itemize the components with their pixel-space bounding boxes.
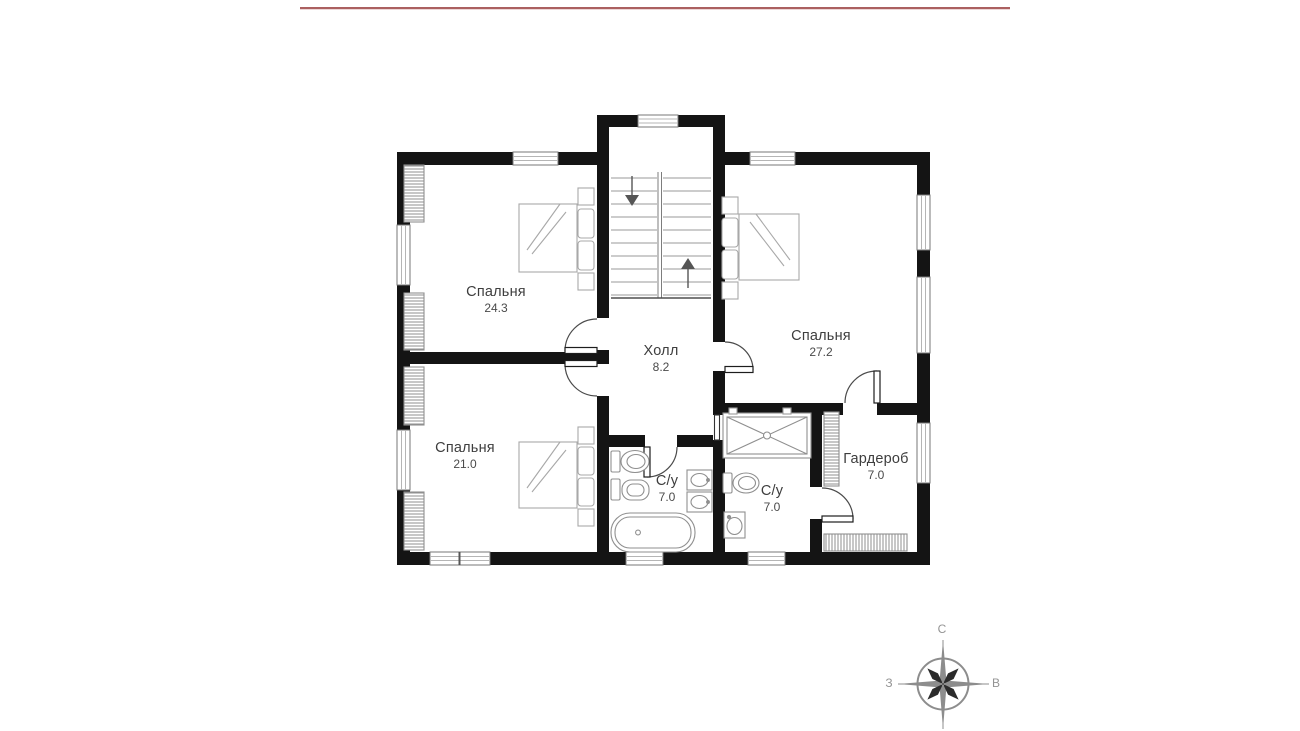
room-label-hall: Холл 8.2	[644, 343, 679, 374]
compass-west-label: З	[885, 676, 892, 690]
window-bottom-left-icon	[430, 552, 490, 565]
window-top-left-icon	[513, 152, 558, 165]
window-left-upper-icon	[397, 225, 410, 285]
bidet-icon	[611, 479, 649, 500]
door-bedroom-right	[725, 342, 753, 373]
door-bedroom-right-to-wardrobe	[845, 371, 880, 403]
compass-north-label: С	[938, 622, 947, 636]
window-bottom-bath2-icon	[748, 552, 785, 565]
room-label-bedroom-bottom-left: Спальня 21.0	[435, 440, 495, 471]
bed-bedroom-top-left-icon	[519, 188, 594, 290]
window-right-middle-icon	[917, 277, 930, 353]
room-label-bedroom-right: Спальня 27.2	[791, 328, 851, 359]
room-label-bedroom-top-left: Спальня 24.3	[466, 284, 526, 315]
sink-right-icon	[724, 512, 745, 538]
room-label-bathroom-right: С/у 7.0	[761, 483, 783, 514]
compass-east-label: В	[992, 676, 1000, 690]
shower-icon	[723, 408, 811, 458]
toilet-left-icon	[611, 451, 649, 473]
staircase	[611, 172, 711, 298]
door-wardrobe	[822, 488, 853, 522]
room-label-wardrobe: Гардероб 7.0	[843, 451, 908, 482]
window-right-wardrobe-icon	[917, 423, 930, 483]
double-sink-icon	[687, 470, 712, 512]
door-bathroom-right	[715, 415, 720, 440]
window-right-upper-icon	[917, 195, 930, 250]
door-bedroom-top-left	[565, 319, 597, 354]
bathtub-icon	[611, 513, 695, 552]
window-top-right-icon	[750, 152, 795, 165]
window-bottom-bath1-icon	[626, 552, 663, 565]
room-label-bathroom-left: С/у 7.0	[656, 473, 678, 504]
fixtures	[611, 408, 811, 552]
compass-rose-icon	[898, 640, 989, 729]
bed-bedroom-bottom-left-icon	[519, 427, 594, 526]
stair-arrow-up-icon	[681, 258, 695, 288]
toilet-right-icon	[723, 473, 759, 493]
window-left-lower-icon	[397, 430, 410, 490]
floor-plan-page: Спальня 24.3 Спальня 27.2 Спальня 21.0 Х…	[0, 0, 1300, 731]
window-stair-icon	[638, 115, 678, 127]
bed-bedroom-right-icon	[722, 197, 799, 299]
door-bedroom-bottom-left	[565, 361, 597, 397]
